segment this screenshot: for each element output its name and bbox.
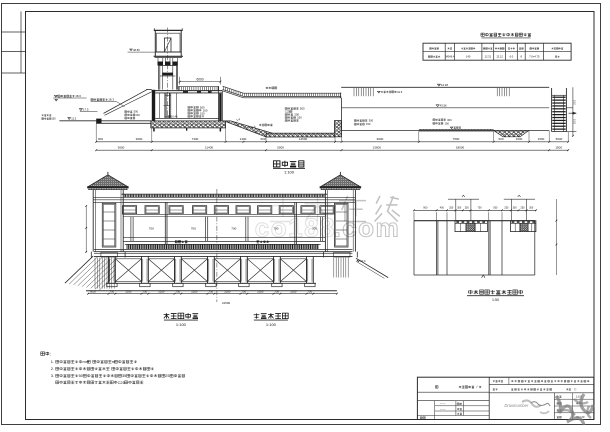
svg-text:700: 700 [312, 227, 317, 231]
svg-text:5000: 5000 [277, 146, 284, 150]
svg-text:300: 300 [369, 119, 374, 123]
svg-text:.com: .com [334, 213, 401, 243]
svg-text:1500: 1500 [538, 137, 545, 141]
svg-text:900: 900 [423, 207, 428, 210]
svg-text:1500: 1500 [555, 146, 562, 150]
svg-text:7.0×4.75: 7.0×4.75 [529, 54, 540, 58]
svg-text:44.38: 44.38 [441, 83, 448, 87]
svg-text:18.6: 18.6 [75, 94, 81, 98]
svg-text:1:100: 1:100 [176, 322, 187, 327]
svg-text:2550: 2550 [290, 289, 296, 293]
svg-text::: : [50, 351, 51, 356]
svg-text:6.0: 6.0 [510, 54, 514, 58]
svg-text:— —: — — [440, 408, 446, 411]
svg-text:14600: 14600 [299, 137, 308, 141]
svg-text:25: 25 [165, 373, 169, 378]
svg-text:12.5: 12.5 [71, 116, 77, 120]
svg-text:7500: 7500 [453, 137, 460, 141]
svg-text:1400: 1400 [240, 137, 247, 141]
svg-text:11400: 11400 [205, 146, 213, 150]
svg-text:500: 500 [493, 207, 498, 210]
svg-text:44.5: 44.5 [397, 90, 403, 94]
svg-text:250: 250 [449, 207, 454, 210]
svg-text:48.80: 48.80 [133, 48, 140, 52]
svg-text:C25: C25 [118, 380, 125, 385]
svg-text:35: 35 [122, 373, 126, 378]
svg-text:140: 140 [466, 54, 471, 58]
svg-text:700: 700 [191, 227, 196, 231]
svg-text:150: 150 [366, 122, 371, 126]
svg-text:150: 150 [52, 118, 57, 121]
svg-text:2000: 2000 [575, 118, 577, 124]
svg-text:3600: 3600 [136, 137, 143, 141]
svg-text:10.49: 10.49 [171, 115, 178, 119]
svg-text:300: 300 [447, 118, 452, 122]
svg-text:co188: co188 [255, 213, 336, 243]
svg-text:Drawnumber: Drawnumber [504, 403, 529, 408]
svg-text:2550: 2550 [125, 289, 131, 293]
svg-text:1500: 1500 [575, 99, 577, 105]
svg-text:300: 300 [513, 207, 518, 210]
svg-text:250: 250 [521, 207, 526, 210]
svg-text:1:100: 1:100 [266, 322, 277, 327]
svg-text:18.3: 18.3 [108, 98, 114, 102]
svg-text:13600: 13600 [373, 146, 382, 150]
svg-text:12.31: 12.31 [485, 54, 492, 58]
svg-text:400: 400 [440, 207, 445, 210]
svg-text:150: 150 [297, 116, 302, 120]
svg-text:300: 300 [457, 207, 462, 210]
svg-text:— —: — — [440, 403, 446, 406]
svg-text:41500: 41500 [222, 301, 231, 305]
svg-text:3600: 3600 [118, 146, 125, 150]
svg-text:500: 500 [300, 107, 305, 111]
svg-text:7400: 7400 [192, 137, 199, 141]
svg-text:2550: 2550 [191, 289, 197, 293]
svg-text:100: 100 [135, 113, 140, 117]
svg-text:2550: 2550 [158, 289, 164, 293]
svg-text:9000: 9000 [377, 137, 384, 141]
svg-text:750: 750 [143, 289, 148, 293]
svg-text:17.5: 17.5 [83, 108, 89, 112]
svg-text:8050: 8050 [90, 289, 96, 293]
svg-text:12.12: 12.12 [496, 54, 503, 58]
svg-text:23.0: 23.0 [360, 259, 366, 263]
svg-text:600: 600 [260, 137, 265, 141]
svg-text:150: 150 [444, 121, 449, 125]
svg-text:/: / [477, 385, 478, 389]
svg-text:750: 750 [275, 289, 280, 293]
svg-text:750: 750 [308, 289, 313, 293]
svg-text:250: 250 [465, 207, 470, 210]
svg-text:600: 600 [98, 137, 103, 141]
svg-text:750: 750 [242, 289, 247, 293]
svg-text:750: 750 [110, 289, 115, 293]
svg-text:( ): ( ) [574, 388, 576, 391]
svg-text:1000: 1000 [516, 137, 523, 141]
svg-text:1.: 1. [51, 359, 54, 364]
svg-text:300: 300 [529, 207, 534, 210]
svg-text:2550: 2550 [257, 289, 263, 293]
svg-text:1:100: 1:100 [284, 169, 295, 174]
svg-text:750: 750 [209, 289, 214, 293]
svg-text:2.: 2. [51, 366, 54, 371]
svg-text:250: 250 [504, 207, 509, 210]
svg-text:18000: 18000 [456, 146, 465, 150]
svg-text:700: 700 [231, 227, 236, 231]
svg-text:700: 700 [273, 227, 278, 231]
svg-text:3.: 3. [51, 373, 54, 378]
svg-text:43.56: 43.56 [440, 104, 447, 108]
svg-text:500: 500 [498, 137, 503, 141]
svg-text:34546.4: 34546.4 [445, 54, 455, 58]
svg-text:700: 700 [149, 227, 154, 231]
svg-text:700: 700 [478, 207, 483, 210]
svg-text:5000: 5000 [556, 137, 563, 141]
svg-text:150: 150 [200, 111, 205, 115]
svg-text:1:50: 1:50 [492, 298, 499, 302]
svg-text:750: 750 [176, 289, 181, 293]
svg-text:6000: 6000 [196, 77, 203, 81]
svg-text:2550: 2550 [224, 289, 230, 293]
svg-text:C25: C25 [285, 110, 291, 114]
